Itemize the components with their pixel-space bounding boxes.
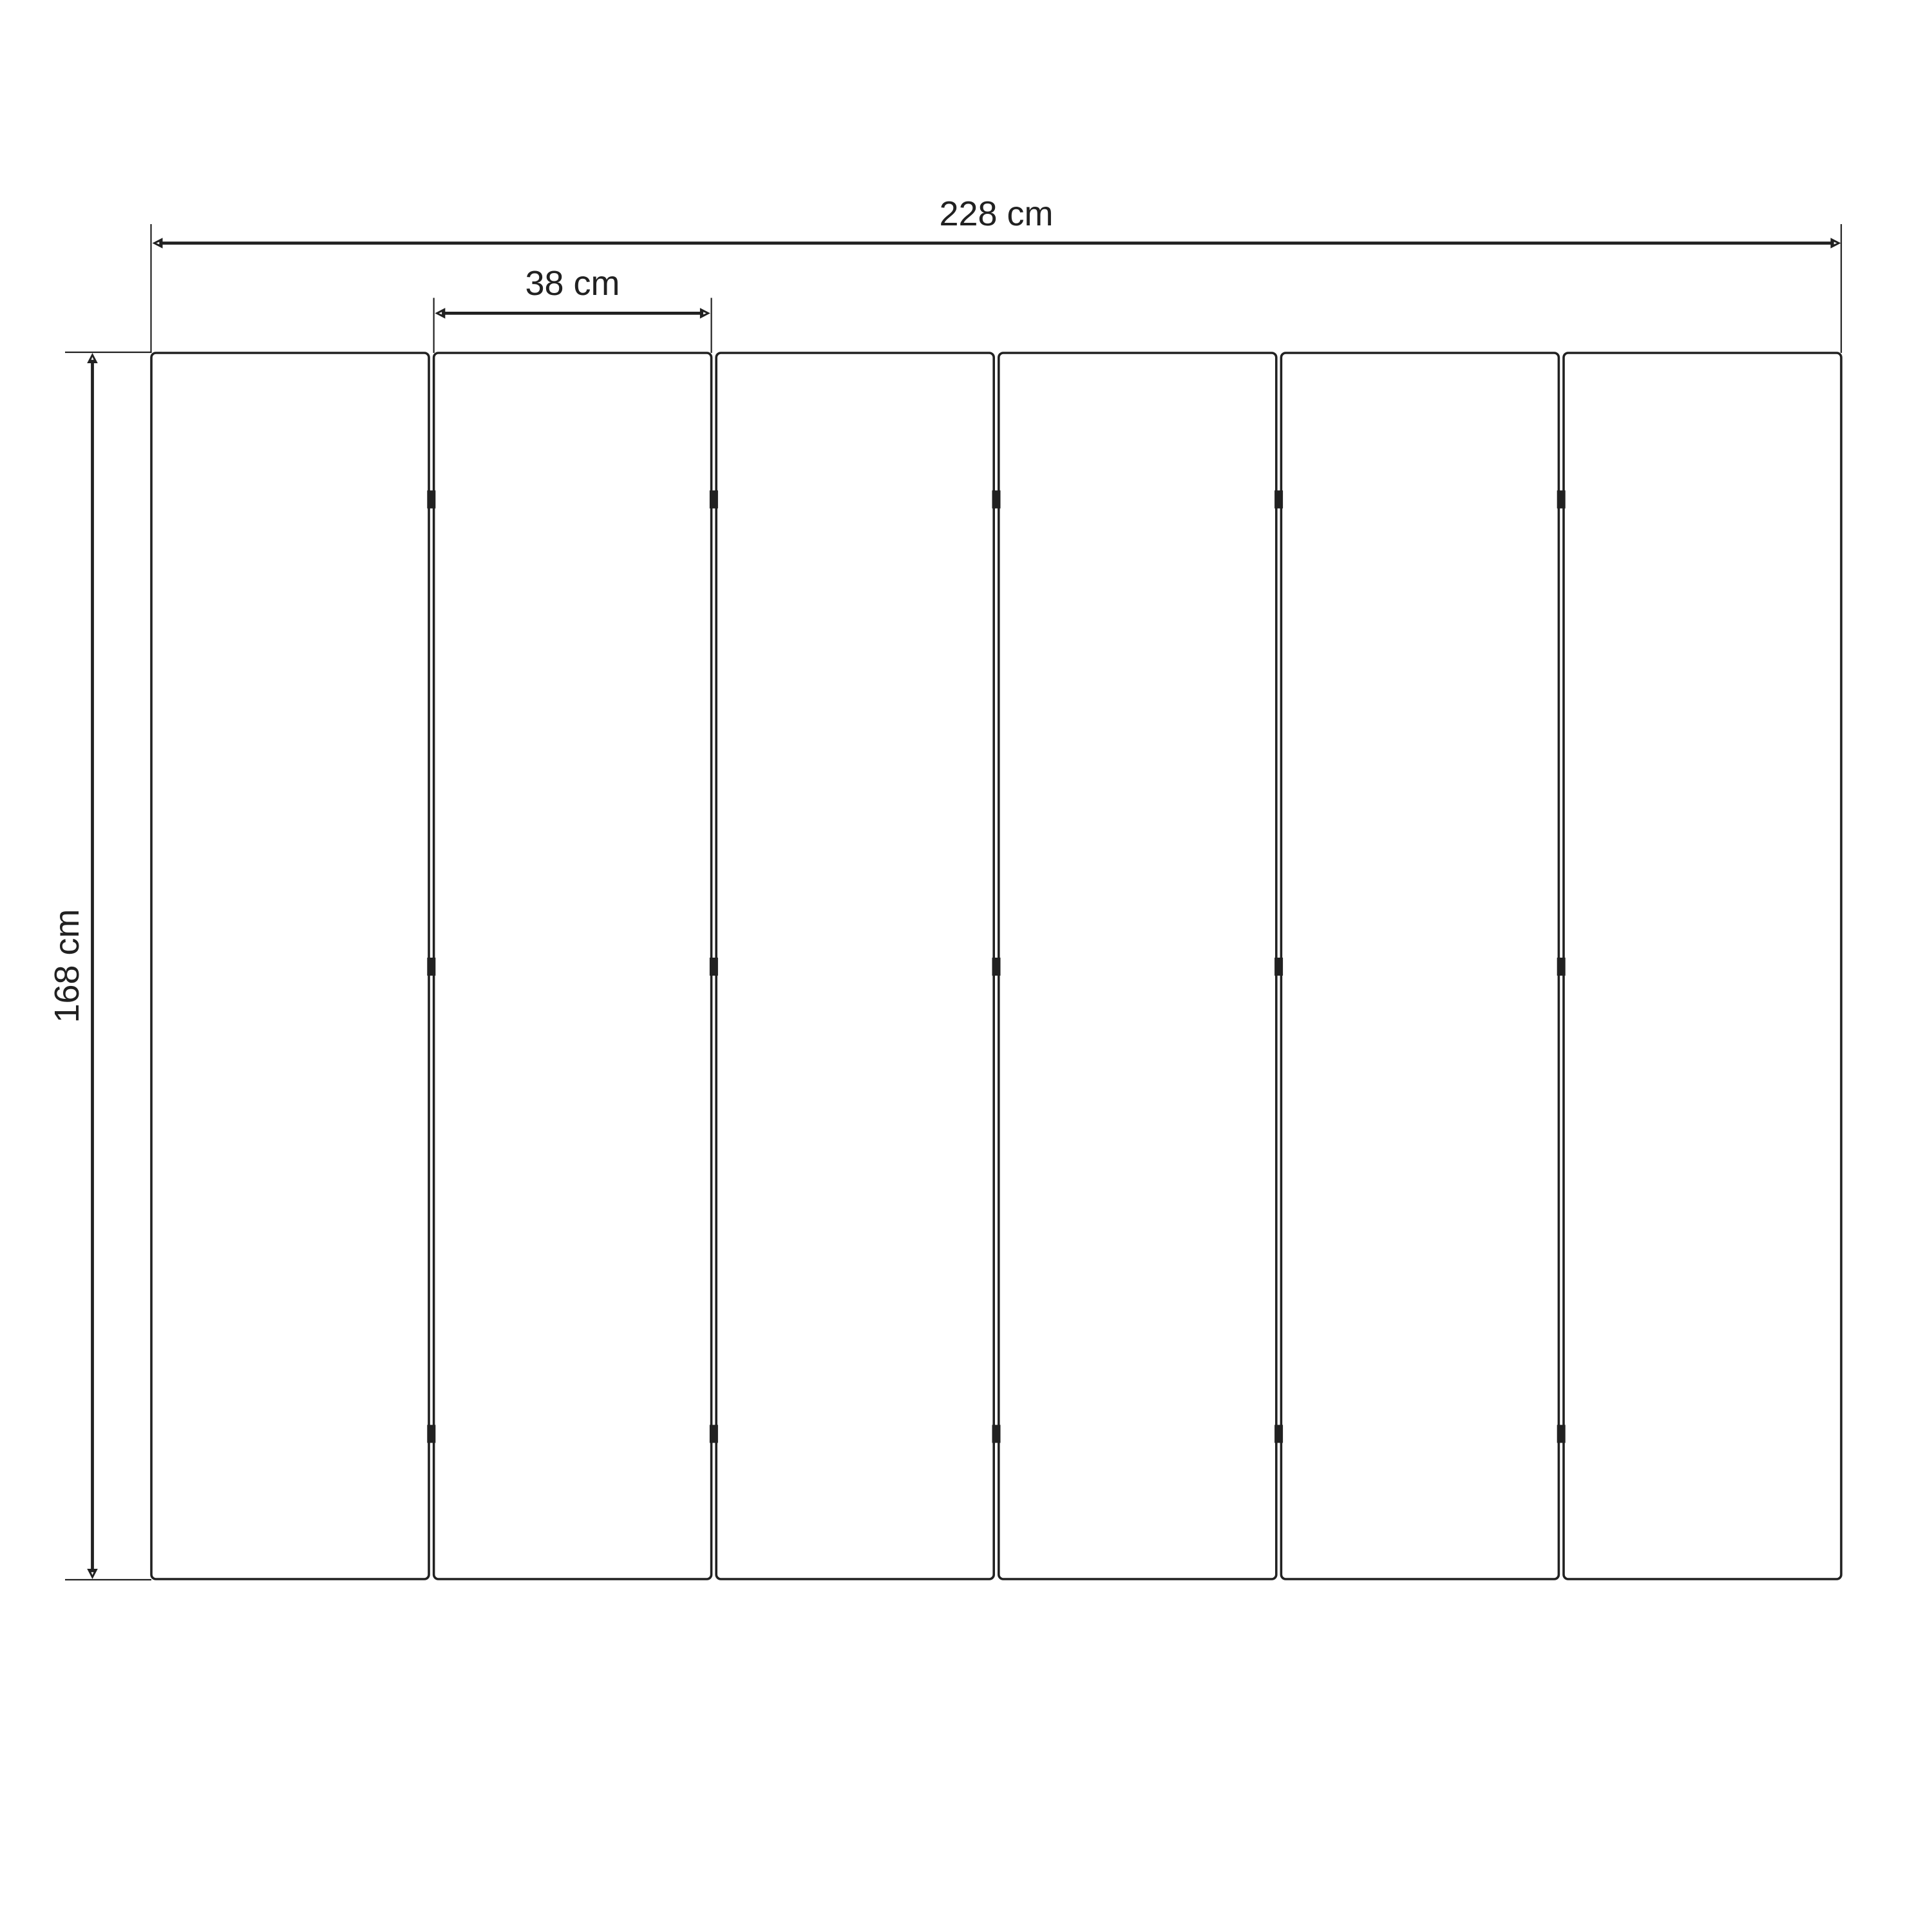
svg-text:38 cm: 38 cm: [525, 264, 620, 303]
svg-text:228 cm: 228 cm: [939, 194, 1053, 233]
svg-text:168 cm: 168 cm: [48, 909, 86, 1023]
